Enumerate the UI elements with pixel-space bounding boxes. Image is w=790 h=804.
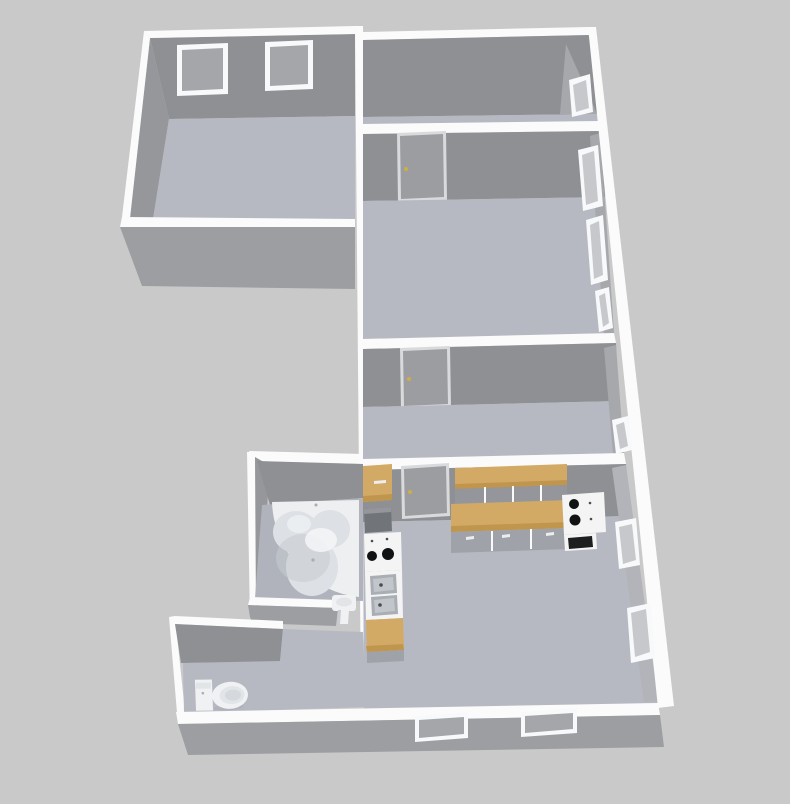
bathtub-faucet — [315, 504, 318, 507]
sink-basin-1-inner — [373, 577, 394, 592]
countertop-run — [451, 500, 569, 553]
oven-door — [568, 536, 593, 549]
sink-basin-2-inner — [374, 598, 395, 613]
burner — [382, 548, 394, 560]
room-right-top — [363, 27, 602, 134]
door-knob — [408, 490, 412, 494]
burner — [569, 499, 579, 509]
bathtub-highlight — [287, 515, 311, 533]
toilet-tank-lid — [195, 682, 211, 690]
cooktop-left — [364, 532, 402, 572]
cabinet-divider — [530, 529, 532, 549]
bathtub-drain — [311, 558, 314, 561]
window-kitchen-east-a — [615, 518, 640, 569]
window-pane — [182, 48, 223, 91]
north-wall-face — [175, 624, 283, 663]
window-south-a — [415, 712, 468, 742]
control-mark — [386, 538, 389, 541]
window-1 — [177, 43, 228, 96]
room-floor — [363, 197, 614, 339]
tall-cabinet — [364, 507, 392, 533]
corner-cabinet — [363, 464, 392, 502]
cabinet-divider — [484, 487, 486, 504]
wall-cabinets — [455, 464, 567, 507]
cabinet-divider — [491, 531, 493, 551]
bathtub-highlight — [305, 528, 337, 552]
base-cabinet-fronts — [451, 528, 569, 553]
3d-floorplan-viewport[interactable] — [0, 0, 790, 804]
door-knob — [404, 167, 408, 171]
window-2 — [265, 40, 313, 91]
window-south-b — [521, 708, 577, 737]
room-floor — [363, 401, 624, 459]
cooktop-right — [562, 492, 606, 535]
faucet — [378, 603, 382, 607]
room-floor — [153, 116, 355, 219]
room-right-middle — [363, 131, 616, 349]
south-outer-wall — [176, 703, 664, 755]
north-wall-face — [257, 461, 363, 505]
window-kitchen-east-b — [627, 603, 655, 663]
window-pane — [270, 45, 308, 86]
burner — [367, 551, 377, 561]
pedestal-sink-bowl — [336, 598, 352, 607]
cabinet-divider — [540, 485, 542, 502]
door-room-middle — [397, 131, 447, 202]
floorplan-3d-render[interactable] — [0, 0, 790, 804]
room-top-left — [120, 26, 355, 289]
faucet — [379, 583, 383, 587]
counter-base — [367, 650, 404, 663]
window-right-top-room — [569, 74, 593, 117]
bathroom — [247, 451, 363, 626]
oven — [564, 533, 597, 551]
door-leaf — [400, 134, 444, 199]
door-kitchen — [401, 463, 450, 519]
side-counter — [366, 618, 404, 663]
control-mark — [589, 502, 592, 505]
control-mark — [371, 540, 374, 543]
burner — [570, 515, 581, 526]
room-right-lower — [363, 343, 626, 470]
door-knob — [407, 377, 411, 381]
cabinet-divider — [512, 486, 514, 503]
control-mark — [590, 518, 593, 521]
cooktop-body — [562, 492, 606, 535]
kitchen-double-sink — [365, 570, 403, 620]
door-room-lower — [400, 346, 451, 409]
south-wall-exterior-face — [120, 227, 355, 289]
